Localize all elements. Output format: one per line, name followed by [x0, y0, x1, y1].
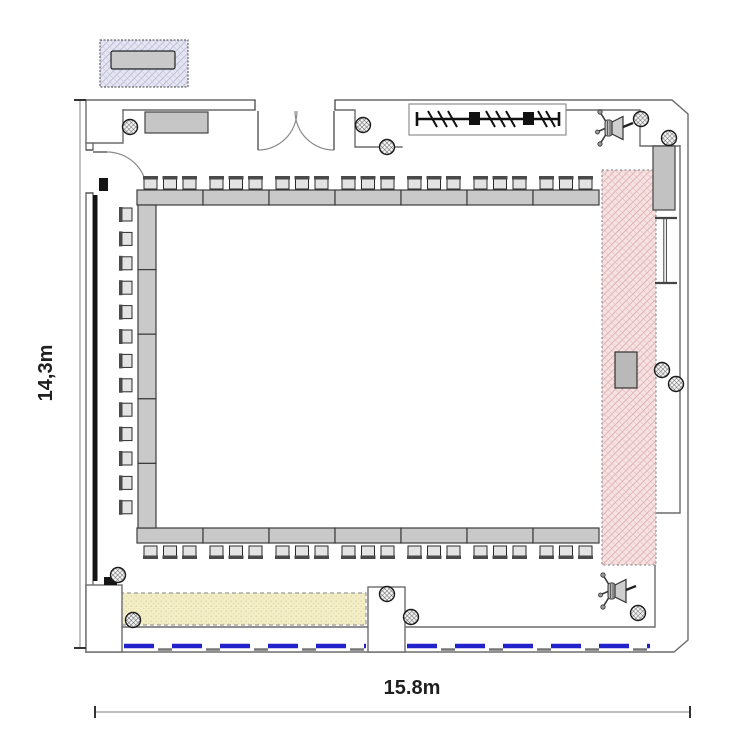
chair-icon [539, 546, 554, 559]
chair-icon [229, 546, 244, 559]
chair-icon [119, 475, 132, 490]
chair-icon [341, 546, 356, 559]
chair-icon [446, 176, 461, 189]
floor-plan-svg: 14,3m 15.8m [0, 0, 750, 750]
dimension-height: 14,3m [35, 100, 86, 648]
sideboard [145, 112, 208, 133]
chair-icon [512, 546, 527, 559]
chair-icon [119, 280, 132, 295]
chair-icon [143, 176, 158, 189]
legend-table [111, 51, 175, 69]
width-dimension-label: 15.8m [384, 677, 441, 699]
chair-icon [427, 546, 442, 559]
chair-icon [119, 378, 132, 393]
chair-icon [578, 176, 593, 189]
chair-icon [275, 546, 290, 559]
chair-icon [182, 176, 197, 189]
column-icon [380, 140, 395, 155]
column-icon [669, 377, 684, 392]
column-icon [631, 606, 646, 621]
chair-icon [248, 176, 263, 189]
door-left [93, 152, 147, 192]
column-icon [356, 118, 371, 133]
pillar-box-bottom-left [86, 585, 122, 652]
buffet-strip [120, 593, 366, 625]
partition-symbol [409, 104, 566, 135]
table-row-top [137, 190, 599, 205]
wall-finish-strip [93, 195, 98, 581]
chair-icon [119, 402, 132, 417]
chair-icon [539, 176, 554, 189]
projector-icon [596, 110, 634, 146]
chair-icon [295, 176, 310, 189]
chair-icon [427, 176, 442, 189]
chair-icon [559, 176, 574, 189]
floor-plan: 14,3m 15.8m [0, 0, 750, 750]
chair-icon [275, 176, 290, 189]
chair-icon [361, 546, 376, 559]
seating-layout [111, 70, 684, 628]
chair-icon [493, 176, 508, 189]
chair-icon [119, 305, 132, 320]
double-door-top [258, 111, 334, 150]
screen-symbol [655, 218, 677, 283]
chair-icon [119, 451, 132, 466]
column-icon [111, 568, 126, 583]
chair-icon [209, 176, 224, 189]
column-icon [123, 120, 138, 135]
chair-icon [163, 546, 178, 559]
chair-icon [248, 546, 263, 559]
chair-icon [407, 546, 422, 559]
chair-icon [407, 176, 422, 189]
projector-icon [599, 573, 637, 609]
chair-icon [119, 353, 132, 368]
chair-icon [314, 546, 329, 559]
chair-icon [182, 546, 197, 559]
chair-icon [341, 176, 356, 189]
chairs-left [119, 207, 132, 515]
chair-icon [512, 176, 527, 189]
chair-icon [380, 546, 395, 559]
table-col-left [138, 205, 156, 528]
column-icon [655, 363, 670, 378]
chair-icon [229, 176, 244, 189]
chair-icon [119, 207, 132, 222]
chair-icon [119, 500, 132, 515]
chair-icon [473, 176, 488, 189]
table-row-bottom [137, 528, 599, 543]
chair-icon [314, 176, 329, 189]
chair-icon [163, 176, 178, 189]
chair-icon [295, 546, 310, 559]
chairs-bottom [143, 546, 593, 559]
chair-icon [119, 231, 132, 246]
chair-icon [361, 176, 376, 189]
lectern [615, 352, 637, 388]
column-icon [380, 587, 395, 602]
legend-sample [100, 40, 188, 87]
chair-icon [119, 256, 132, 271]
chair-icon [446, 546, 461, 559]
chair-icon [578, 546, 593, 559]
chairs-top [143, 176, 593, 189]
chair-icon [119, 329, 132, 344]
column-icon [634, 112, 649, 127]
chair-icon [559, 546, 574, 559]
height-dimension-label: 14,3m [35, 345, 57, 402]
chair-icon [143, 546, 158, 559]
chair-icon [380, 176, 395, 189]
dimension-width: 15.8m [95, 677, 690, 718]
cabinet [653, 146, 675, 210]
column-icon [126, 613, 141, 628]
column-icon [404, 610, 419, 625]
chair-icon [493, 546, 508, 559]
chair-icon [473, 546, 488, 559]
chair-icon [119, 427, 132, 442]
chair-icon [209, 546, 224, 559]
column-icon [662, 131, 677, 146]
